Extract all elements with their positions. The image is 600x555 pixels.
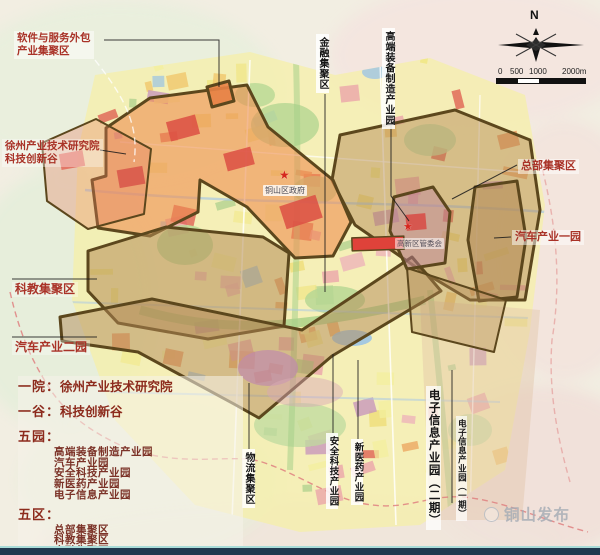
callout-line: 产业集聚区 (17, 45, 91, 58)
watermark-text: 铜山发布 (504, 503, 570, 525)
legend-key: 一谷： (18, 404, 60, 419)
scale-tick: 1000 (529, 67, 547, 76)
scale-tick: 2000m (562, 67, 586, 76)
legend-key: 五园： (18, 429, 60, 444)
planning-map-figure: 软件与服务外包 产业集聚区 徐州产业技术研究院 科技创新谷 金融集聚区 高端装备… (0, 0, 600, 555)
legend-row-institute: 一院：徐州产业技术研究院 (18, 376, 243, 395)
tongshan-logo-icon (484, 507, 499, 522)
legend-value: 徐州产业技术研究院 (60, 380, 173, 394)
scale-tick: 500 (510, 67, 523, 76)
callout-auto-park-two: 汽车产业二园 (12, 340, 90, 355)
label-equipment-park: 高端装备制造产业园 (382, 28, 395, 129)
label-electronics-phase2: 电子信息产业园（二期） (426, 386, 441, 530)
callout-headquarters: 总部集聚区 (518, 159, 579, 174)
callout-line: 徐州产业技术研究院 (5, 140, 100, 153)
callout-xuzhou-institute: 徐州产业技术研究院 科技创新谷 (2, 139, 103, 167)
legend-row-valley: 一谷：科技创新谷 (18, 401, 243, 420)
legend-row-five-parks: 五园： (18, 426, 243, 445)
label-electronics-phase1: 电子信息产业园（一期） (456, 416, 467, 521)
scale-bar-segment (539, 79, 585, 83)
callout-auto-park-one: 汽车产业一园 (512, 230, 584, 245)
callout-line: 科技创新谷 (5, 153, 100, 166)
marker-hightech-committee: 高新区管委会 (395, 238, 444, 249)
callout-sci-edu: 科教集聚区 (12, 282, 78, 297)
legend-item: 电子信息产业园 (18, 490, 243, 501)
watermark: 铜山发布 (484, 503, 570, 525)
bottom-bar (0, 546, 600, 555)
map-patch (401, 415, 415, 424)
legend-key: 五区： (18, 507, 60, 522)
legend-value: 科技创新谷 (60, 405, 123, 419)
map-legend: 一院：徐州产业技术研究院 一谷：科技创新谷 五园： 高端装备制造产业园 汽车产业… (18, 376, 243, 555)
star-marker-icon: ★ (403, 221, 413, 233)
map-patch (152, 76, 164, 87)
label-finance-cluster: 金融集聚区 (316, 34, 329, 93)
compass-north-label: N (530, 8, 539, 22)
label-new-medicine-park: 新医药产业园 (351, 439, 363, 505)
region-software-outsourcing (207, 81, 234, 107)
scale-tick: 0 (498, 67, 502, 76)
map-patch (302, 485, 312, 492)
legend-key: 一院： (18, 379, 60, 394)
legend-item: 高端装备制造产业园 (18, 447, 243, 458)
marker-district-gov: 铜山区政府 (263, 185, 307, 196)
map-patch (339, 84, 360, 102)
scale-bar (496, 78, 586, 84)
label-safety-tech-park: 安全科技产业园 (326, 433, 338, 509)
legend-item: 总部集聚区 (18, 525, 243, 536)
callout-line: 软件与服务外包 (17, 32, 91, 45)
map-patch (236, 64, 247, 83)
label-logistics-cluster: 物流集聚区 (242, 449, 255, 508)
legend-item: 科教集聚区 (18, 535, 243, 546)
scale-bar-segment (497, 79, 518, 83)
star-marker-icon: ★ (279, 169, 290, 181)
legend-item: 安全科技产业园 (18, 468, 243, 479)
legend-five-parks-items: 高端装备制造产业园 汽车产业园 安全科技产业园 新医药产业园 电子信息产业园 (18, 447, 243, 501)
map-patch (378, 400, 392, 418)
callout-software-outsourcing: 软件与服务外包 产业集聚区 (14, 31, 94, 59)
legend-row-five-zones: 五区： (18, 504, 243, 523)
map-patch (322, 270, 339, 283)
